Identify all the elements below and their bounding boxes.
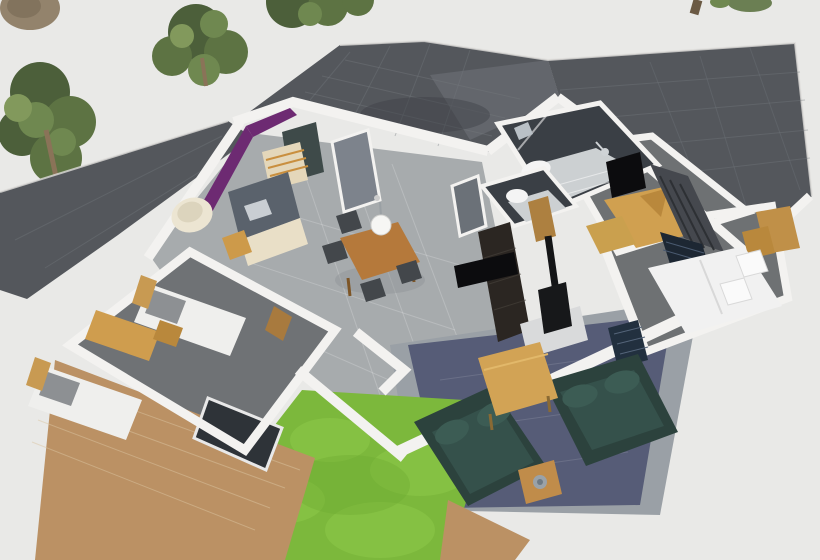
pendant-lamp xyxy=(371,215,391,235)
dining-table-leg xyxy=(348,278,350,296)
shower-head xyxy=(601,148,609,156)
pendant-cord xyxy=(380,202,381,216)
wc-sink xyxy=(506,189,528,203)
tree-canopy xyxy=(170,24,194,48)
tree-canopy xyxy=(298,2,322,26)
coffee-table-leg xyxy=(490,414,492,430)
floorplan-3d-render xyxy=(0,0,820,560)
coffee-table-leg xyxy=(548,396,550,412)
tree-trunk xyxy=(694,0,698,14)
hall-window xyxy=(452,176,486,236)
side-table-vase-dot xyxy=(537,479,543,485)
scene-svg xyxy=(0,0,820,560)
tree-canopy xyxy=(200,10,228,38)
wood-stove xyxy=(538,282,572,334)
ceiling-lamp-dot xyxy=(374,195,380,201)
tree-canopy xyxy=(4,94,32,122)
